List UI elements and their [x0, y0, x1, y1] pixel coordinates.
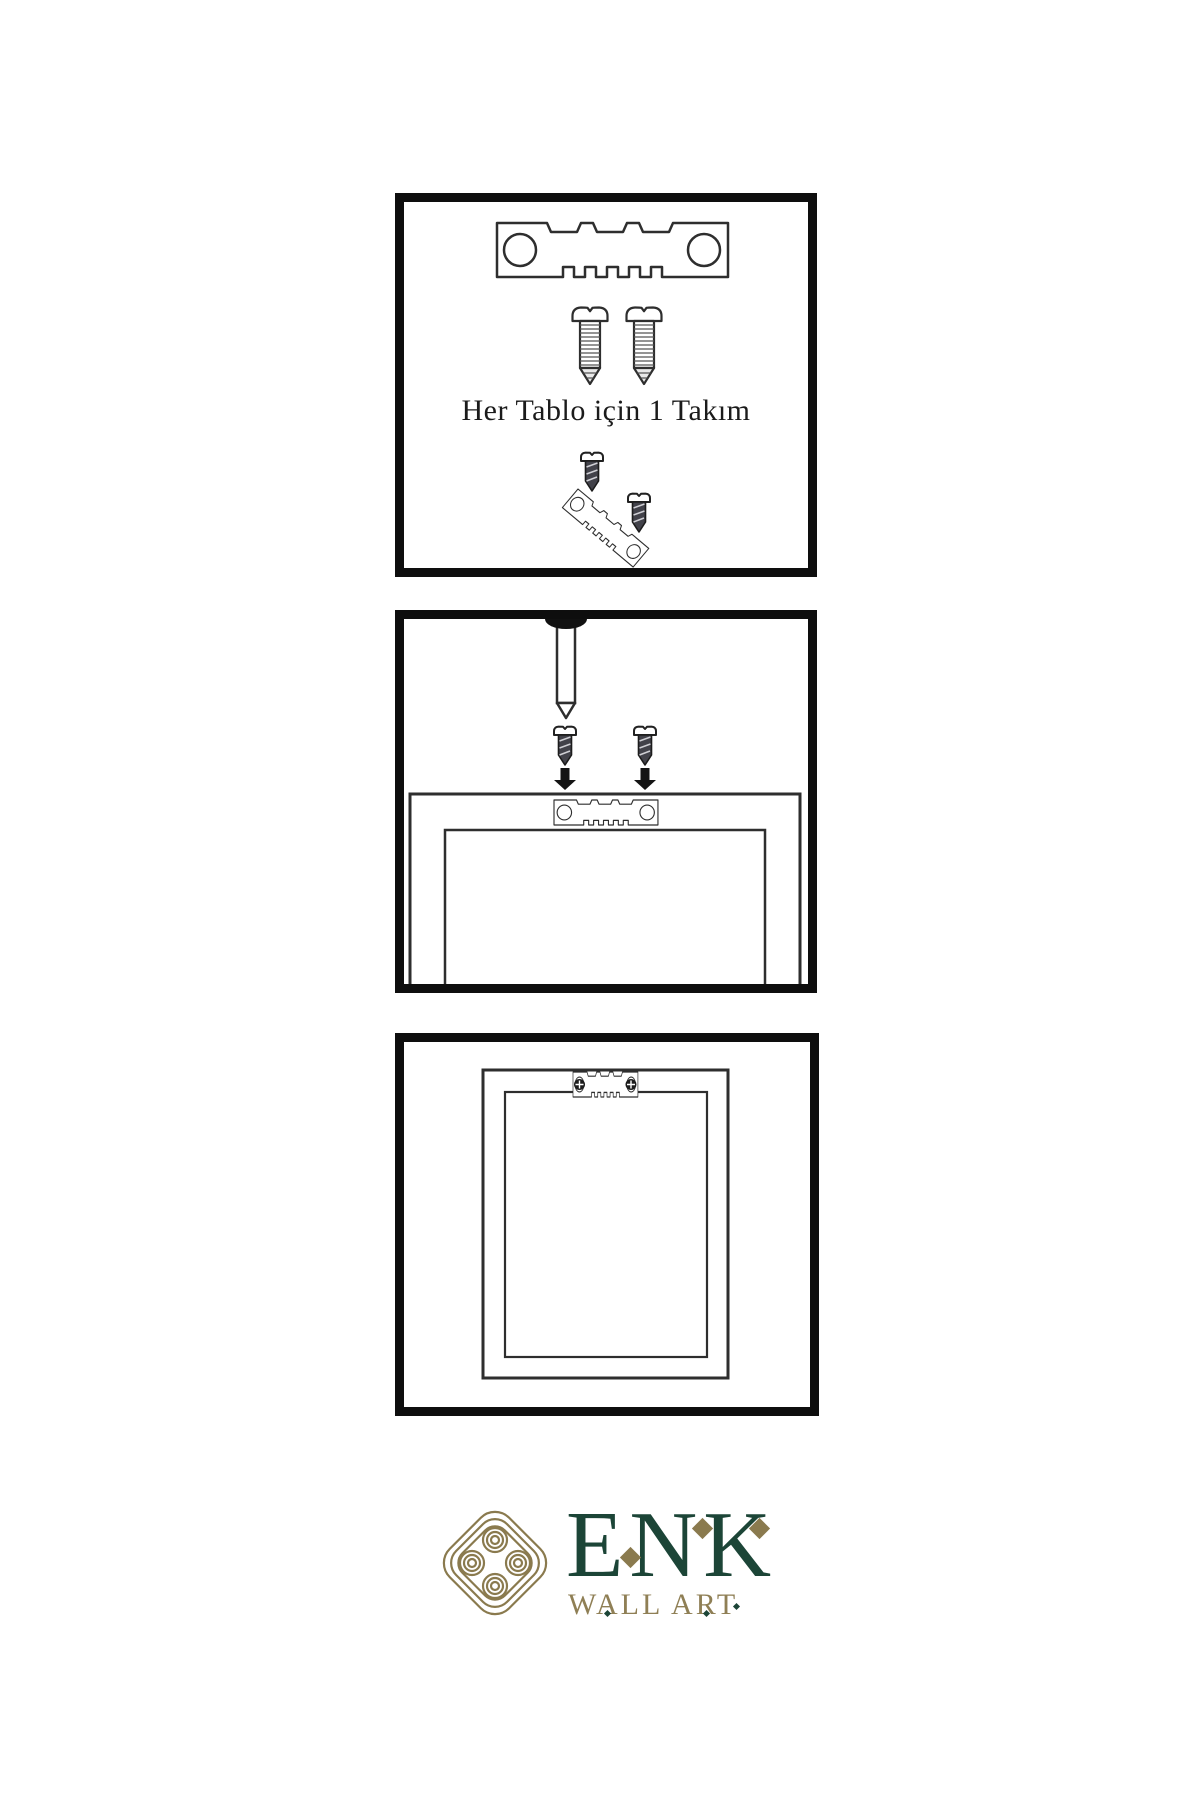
picture-frame-icon: [483, 1070, 728, 1378]
down-arrow-icon: [554, 768, 576, 790]
brand-name: ENK: [566, 1498, 777, 1592]
screw-icon: [573, 308, 608, 385]
hung-frame-illustration: [395, 1033, 819, 1416]
dark-screw-icon: [581, 453, 603, 491]
step3-hung-frame-panel: [395, 1033, 819, 1416]
down-arrow-icon: [634, 768, 656, 790]
wall-nail-icon: [545, 619, 587, 718]
step1-hardware-kit-panel: Her Tablo için 1 Takım: [395, 193, 817, 577]
brand-subtitle: WALL ART: [568, 1590, 738, 1620]
sawtooth-hanger-icon: [497, 223, 728, 277]
hardware-kit-illustration: [395, 193, 817, 577]
knot-spiral: [460, 1528, 530, 1598]
dark-screw-icon: [628, 494, 650, 532]
mounting-illustration: [395, 610, 817, 993]
dark-screw-icon: [634, 727, 656, 765]
instruction-sheet: { "instruction": { "caption": "Her Tablo…: [0, 0, 1200, 1800]
dark-screw-icon: [554, 727, 576, 765]
step2-mounting-panel: [395, 610, 817, 993]
screw-icon: [627, 308, 662, 385]
knot-logo-icon: [437, 1500, 553, 1627]
sawtooth-hanger-icon: [554, 800, 658, 825]
kit-caption: Her Tablo için 1 Takım: [404, 394, 808, 428]
picture-frame-icon: [410, 794, 800, 993]
